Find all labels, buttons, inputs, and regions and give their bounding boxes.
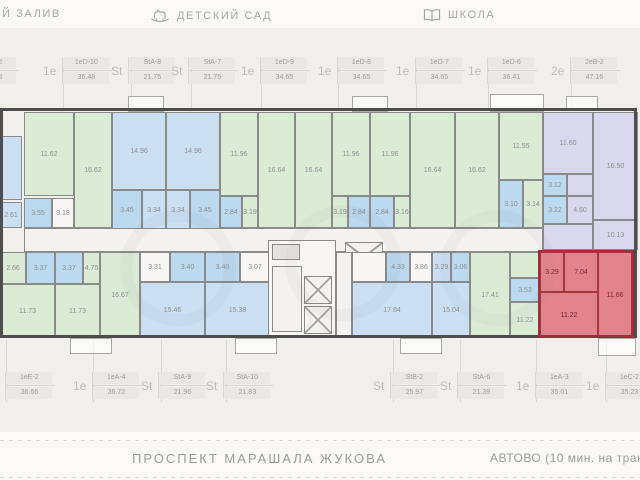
unit-chip-StA-8[interactable]: StStA-821.75 — [111, 57, 175, 84]
room — [510, 252, 540, 278]
chip-separator — [261, 70, 310, 71]
room-area-label: 3.53 — [518, 287, 532, 294]
unit-code-label: StA-9 — [159, 372, 205, 384]
room: 16.50 — [593, 112, 638, 220]
room-area-label: 3.86 — [414, 264, 428, 271]
balcony — [70, 338, 112, 354]
room-area-label: 17.41 — [481, 292, 499, 299]
unit-code-label: 2еВ-2 — [571, 57, 617, 69]
room: 4.75 — [83, 252, 100, 284]
room: 3.34 — [166, 190, 190, 230]
unit-chip-2еВ-2[interactable]: 2е2еВ-247.16 — [551, 57, 617, 84]
unit-type-label: St — [206, 379, 217, 393]
room: 3.18 — [52, 198, 74, 228]
unit-chip-rows: 1еА-335.01 — [535, 372, 582, 399]
unit-type-label: St — [171, 64, 182, 78]
unit-area-label: 35.01 — [536, 387, 582, 399]
unit-type-label: 1е — [516, 379, 529, 393]
unit-area-label: 36.72 — [93, 387, 139, 399]
room-area-label: 11.55 — [513, 143, 530, 150]
chip-separator — [224, 385, 273, 386]
road-dash-top — [0, 440, 640, 441]
unit-area-label: 36.41 — [488, 72, 534, 84]
unit-area-label: 21.75 — [189, 72, 235, 84]
unit-chip-1еЕ-2[interactable]: 1е1еЕ-236.66 — [0, 372, 52, 399]
room: 4.60 — [567, 196, 593, 224]
road-dash-bottom — [0, 477, 640, 478]
room: 3.10 — [499, 180, 523, 228]
unit-chip-StA-7[interactable]: StStA-721.75 — [171, 57, 235, 84]
unit-chip-rows: 1еD-834.65 — [337, 57, 384, 84]
chip-separator — [488, 70, 537, 71]
room: 2.61 — [0, 202, 22, 228]
unit-area-label: 34.65 — [261, 72, 307, 84]
room — [352, 252, 386, 282]
landmark-bay: Й ЗАЛИВ — [2, 8, 61, 20]
room — [336, 252, 352, 338]
room-area-label: 16.62 — [84, 167, 102, 174]
room: 3.06 — [451, 252, 470, 282]
chip-separator — [571, 70, 620, 71]
unit-code-label: 1еС-2 — [606, 372, 640, 384]
room-area-label: 16.67 — [111, 292, 129, 299]
room-area-label: 15.38 — [229, 307, 247, 314]
room-area-label: 11.96 — [343, 151, 360, 158]
room-area-label: 3.18 — [56, 210, 70, 217]
unit-area-label: 36.66 — [6, 387, 52, 399]
selected-apartment-room[interactable]: 11.66 — [598, 252, 632, 338]
unit-code-label: 1еА-4 — [93, 372, 139, 384]
unit-area-label: 36.48 — [63, 72, 109, 84]
room: 3.07 — [240, 252, 270, 282]
unit-code-label: StA-6 — [458, 372, 504, 384]
room-area-label: 16.50 — [607, 163, 625, 170]
room: 3.37 — [26, 252, 55, 284]
room: 15.04 — [432, 282, 470, 338]
balcony — [235, 338, 277, 354]
room: 2.66 — [0, 252, 26, 284]
room: 3.34 — [142, 190, 166, 230]
room: 17.84 — [352, 282, 432, 338]
room-area-label: 14.96 — [130, 148, 148, 155]
unit-chip-1еD-10[interactable]: 1е1еD-1036.48 — [43, 57, 109, 84]
chip-separator — [0, 70, 19, 71]
room-area-label: 15.46 — [164, 307, 182, 314]
rocking-horse-icon — [150, 8, 170, 24]
unit-type-label: St — [141, 379, 152, 393]
unit-chip-1еD-7[interactable]: 1е1еD-734.65 — [396, 57, 462, 84]
unit-chip-rows: StA-921.96 — [158, 372, 205, 399]
room-area-label: 3.37 — [34, 265, 48, 272]
room — [272, 266, 302, 332]
room-area-label: 16.64 — [268, 167, 286, 174]
room: 3.22 — [543, 196, 567, 224]
room: 3.53 — [510, 278, 540, 302]
room-area-label: 10.13 — [607, 232, 625, 239]
room: 14.96 — [166, 112, 220, 190]
room: 2.84 — [348, 196, 370, 228]
room: 3.45 — [112, 190, 142, 230]
room: 15.46 — [140, 282, 205, 338]
room: 3.29 — [432, 252, 451, 282]
room-area-label: 3.16 — [395, 209, 409, 216]
balcony — [490, 94, 544, 112]
landmark-school: ШКОЛА — [423, 8, 495, 22]
room: 3.40 — [170, 252, 205, 282]
room-area-label: 3.31 — [148, 264, 162, 271]
unit-type-label: St — [373, 379, 384, 393]
unit-code-label: StC-2 — [0, 57, 16, 69]
chip-separator — [6, 385, 55, 386]
unit-chip-rows: StA-821.75 — [128, 57, 175, 84]
unit-area-label: 25.88 — [0, 72, 16, 84]
room-area-label: 3.34 — [147, 207, 161, 214]
room: 4.33 — [386, 252, 410, 282]
room-area-label: 3.45 — [198, 207, 212, 214]
room-area-label: 3.29 — [545, 269, 559, 276]
balcony — [566, 96, 598, 110]
room-area-label: 3.45 — [120, 207, 134, 214]
room-area-label: 17.84 — [383, 307, 401, 314]
room-area-label: 3.12 — [548, 182, 562, 189]
room-area-label: 11.66 — [607, 292, 624, 299]
unit-type-label: 1е — [396, 64, 409, 78]
room — [0, 136, 22, 200]
chip-separator — [391, 385, 440, 386]
unit-area-label: 34.65 — [338, 72, 384, 84]
room: 17.41 — [470, 252, 510, 338]
room-area-label: 3.34 — [171, 207, 185, 214]
balcony — [128, 96, 164, 112]
room-area-label: 3.40 — [216, 264, 230, 271]
room-area-label: 3.37 — [62, 265, 76, 272]
room: 11.73 — [55, 284, 100, 338]
room: 3.37 — [55, 252, 83, 284]
room: 16.64 — [295, 112, 332, 228]
chip-separator — [93, 385, 142, 386]
room-area-label: 14.96 — [184, 148, 202, 155]
unit-type-label: 2е — [551, 64, 564, 78]
landmarks-bar: Й ЗАЛИВ ДЕТСКИЙ САД ШКОЛА — [0, 0, 640, 28]
balcony — [400, 338, 442, 354]
selected-apartment-room[interactable]: 7.04 — [564, 252, 598, 292]
unit-code-label: 1еD-7 — [416, 57, 462, 69]
room: 11.22 — [510, 302, 540, 338]
landmark-kindergarten-label: ДЕТСКИЙ САД — [177, 10, 272, 22]
room-area-label: 3.40 — [181, 264, 195, 271]
room-area-label: 11.60 — [560, 140, 577, 147]
unit-code-label: StA-7 — [189, 57, 235, 69]
unit-code-label: 1еЕ-2 — [6, 372, 52, 384]
elevator-icon — [305, 307, 331, 333]
room-area-label: 11.73 — [69, 308, 86, 315]
room-area-label: 16.64 — [305, 167, 323, 174]
unit-type-label: 1е — [43, 64, 56, 78]
unit-chip-rows: 1еС-235.23 — [605, 372, 640, 399]
unit-type-label: 1е — [73, 379, 86, 393]
room — [543, 224, 593, 250]
room-area-label: 11.22 — [517, 317, 534, 324]
room: 3.14 — [523, 180, 543, 228]
landmark-school-label: ШКОЛА — [448, 9, 495, 21]
unit-chip-rows: StA-621.39 — [457, 372, 504, 399]
room: 2.84 — [370, 196, 394, 228]
room-area-label: 4.60 — [573, 207, 587, 214]
unit-code-label: 1еD-6 — [488, 57, 534, 69]
room-area-label: 11.62 — [41, 151, 58, 158]
balcony — [598, 338, 636, 356]
room: 3.19 — [242, 196, 258, 228]
unit-code-label: 1еА-3 — [536, 372, 582, 384]
room-area-label: 3.10 — [504, 201, 518, 208]
room: 11.73 — [0, 284, 55, 338]
unit-chip-rows: 2еВ-247.16 — [570, 57, 617, 84]
room-area-label: 2.84 — [352, 209, 366, 216]
metro-label: АВТОВО (10 мин. на трансп — [490, 451, 640, 465]
room: 3.12 — [543, 174, 567, 196]
room-area-label: 16.62 — [468, 167, 486, 174]
unit-area-label: 21.75 — [129, 72, 175, 84]
unit-type-label: St — [440, 379, 451, 393]
unit-chip-rows: StA-721.75 — [188, 57, 235, 84]
room-area-label: 11.73 — [19, 308, 36, 315]
unit-chip-StB-2[interactable]: StStB-225.97 — [373, 372, 437, 399]
room: 14.96 — [112, 112, 166, 190]
unit-code-label: StA-8 — [129, 57, 175, 69]
unit-chip-rows: 1еD-1036.48 — [62, 57, 109, 84]
room-area-label: 15.04 — [442, 307, 460, 314]
floor-plan-page: { "landmarks": { "bay": "Й ЗАЛИВ", "kind… — [0, 0, 640, 480]
room: 15.38 — [205, 282, 270, 338]
unit-chip-1еD-8[interactable]: 1е1еD-834.65 — [318, 57, 384, 84]
room — [304, 306, 332, 334]
selected-apartment-room[interactable]: 3.29 — [540, 252, 564, 292]
room: 3.16 — [394, 196, 410, 228]
room: 11.96 — [370, 112, 410, 196]
room-area-label: 3.07 — [248, 264, 262, 271]
room: 3.40 — [205, 252, 240, 282]
unit-chip-rows: 1еА-436.72 — [92, 372, 139, 399]
unit-chip-1еА-4[interactable]: 1е1еА-436.72 — [73, 372, 139, 399]
room-area-label: 3.55 — [31, 210, 45, 217]
room-area-label: 2.61 — [4, 212, 18, 219]
unit-chip-StC-2[interactable]: StStC-225.88 — [0, 57, 16, 84]
room-area-label: 3.29 — [435, 264, 449, 271]
unit-code-label: 1еD-9 — [261, 57, 307, 69]
unit-chip-rows: 1еD-934.65 — [260, 57, 307, 84]
room: 3.55 — [24, 198, 52, 228]
room-area-label: 3.19 — [243, 209, 257, 216]
room: 11.60 — [543, 112, 593, 174]
room-area-label: 4.75 — [85, 265, 99, 272]
room: 11.62 — [24, 112, 74, 196]
room: 3.31 — [140, 252, 170, 282]
room: 16.64 — [258, 112, 295, 228]
unit-chip-rows: 1еD-734.65 — [415, 57, 462, 84]
unit-area-label: 47.16 — [571, 72, 617, 84]
room-area-label: 3.14 — [526, 201, 540, 208]
room: 16.62 — [455, 112, 499, 228]
room-area-label: 7.04 — [574, 269, 588, 276]
unit-chip-1еА-3[interactable]: 1е1еА-335.01 — [516, 372, 582, 399]
room-area-label: 3.19 — [333, 209, 347, 216]
unit-area-label: 21.96 — [159, 387, 205, 399]
room-area-label: 16.64 — [424, 167, 442, 174]
room: 3.86 — [410, 252, 432, 282]
unit-chip-StA-9[interactable]: StStA-921.96 — [141, 372, 205, 399]
unit-chip-StA-10[interactable]: StStA-1021.83 — [206, 372, 270, 399]
room-area-label: 2.66 — [6, 265, 20, 272]
room-area-label: 11.96 — [231, 151, 248, 158]
chip-separator — [416, 70, 465, 71]
unit-type-label: St — [111, 64, 122, 78]
balcony — [352, 96, 388, 112]
room-area-label: 11.22 — [561, 312, 578, 319]
chip-separator — [159, 385, 208, 386]
room — [304, 276, 332, 304]
landmark-kindergarten: ДЕТСКИЙ САД — [150, 8, 272, 24]
unit-chip-rows: 1еD-636.41 — [487, 57, 534, 84]
unit-chip-1еD-9[interactable]: 1е1еD-934.65 — [241, 57, 307, 84]
selected-apartment-room[interactable]: 11.22 — [540, 292, 598, 338]
unit-area-label: 34.65 — [416, 72, 462, 84]
street-avenue-label: ПРОСПЕКТ МАРАШАЛА ЖУКОВА — [132, 451, 387, 466]
chip-separator — [338, 70, 387, 71]
unit-type-label: 1е — [318, 64, 331, 78]
chip-separator — [458, 385, 507, 386]
unit-chip-1еС-2[interactable]: 1е1еС-235.23 — [586, 372, 640, 399]
room: 10.13 — [593, 220, 638, 250]
room: 16.67 — [100, 252, 140, 338]
room — [567, 174, 593, 196]
room: 3.19 — [332, 196, 348, 228]
landmark-bay-label: Й ЗАЛИВ — [2, 8, 61, 20]
book-icon — [423, 8, 441, 22]
unit-chip-StA-6[interactable]: StStA-621.39 — [440, 372, 504, 399]
chip-separator — [606, 385, 640, 386]
room: 11.55 — [499, 112, 543, 180]
unit-type-label: 1е — [586, 379, 599, 393]
unit-chip-rows: StC-225.88 — [0, 57, 16, 84]
room-area-label: 2.84 — [224, 209, 238, 216]
room: 2.84 — [220, 196, 242, 228]
unit-type-label: 1е — [241, 64, 254, 78]
chip-separator — [536, 385, 585, 386]
unit-code-label: 1еD-8 — [338, 57, 384, 69]
unit-code-label: StB-2 — [391, 372, 437, 384]
unit-area-label: 35.23 — [606, 387, 640, 399]
unit-area-label: 21.39 — [458, 387, 504, 399]
room-area-label: 4.33 — [391, 264, 405, 271]
unit-chip-rows: 1еЕ-236.66 — [5, 372, 52, 399]
room — [272, 244, 300, 260]
unit-area-label: 21.83 — [224, 387, 270, 399]
street-bar: ПРОСПЕКТ МАРАШАЛА ЖУКОВА АВТОВО (10 мин.… — [0, 432, 640, 480]
room-area-label: 3.22 — [548, 207, 562, 214]
room-area-label: 3.06 — [454, 264, 468, 271]
room: 11.96 — [332, 112, 370, 196]
room: 11.96 — [220, 112, 258, 196]
chip-separator — [63, 70, 112, 71]
room-area-label: 2.84 — [375, 209, 389, 216]
room: 3.45 — [190, 190, 220, 230]
unit-chip-1еD-6[interactable]: 1е1еD-636.41 — [468, 57, 534, 84]
chip-separator — [189, 70, 238, 71]
unit-type-label: 1е — [468, 64, 481, 78]
unit-chip-rows: StB-225.97 — [390, 372, 437, 399]
room: 16.64 — [410, 112, 455, 228]
unit-code-label: 1еD-10 — [63, 57, 109, 69]
room-area-label: 11.96 — [382, 151, 399, 158]
unit-code-label: StA-10 — [224, 372, 270, 384]
room: 16.62 — [74, 112, 112, 228]
unit-chip-rows: StA-1021.83 — [223, 372, 270, 399]
unit-area-label: 25.97 — [391, 387, 437, 399]
elevator-icon — [305, 277, 331, 303]
